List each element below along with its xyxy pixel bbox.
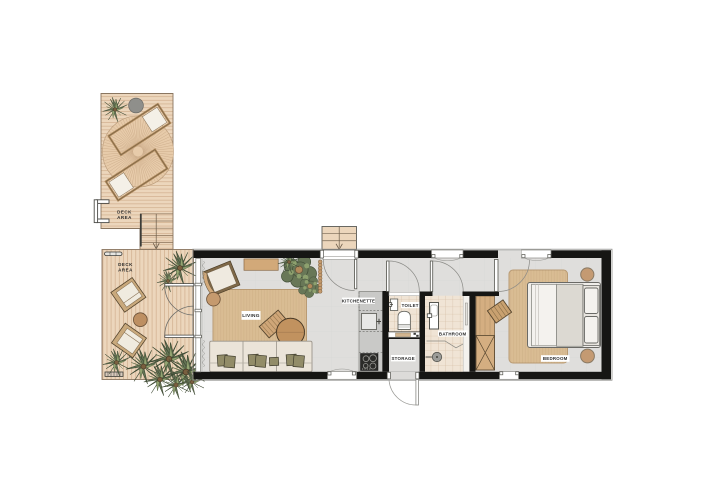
svg-text:AREA: AREA: [117, 215, 132, 220]
svg-text:STORAGE: STORAGE: [392, 356, 415, 361]
svg-text:TOILET: TOILET: [402, 303, 419, 308]
svg-text:AREA: AREA: [118, 267, 133, 272]
svg-text:LIVING: LIVING: [242, 313, 260, 319]
svg-text:BATHROOM: BATHROOM: [439, 331, 467, 336]
svg-text:DECK: DECK: [118, 262, 133, 267]
svg-text:BEDROOM: BEDROOM: [543, 356, 568, 361]
svg-text:KITCHENETTE: KITCHENETTE: [342, 299, 376, 304]
svg-text:DECK: DECK: [117, 209, 132, 214]
